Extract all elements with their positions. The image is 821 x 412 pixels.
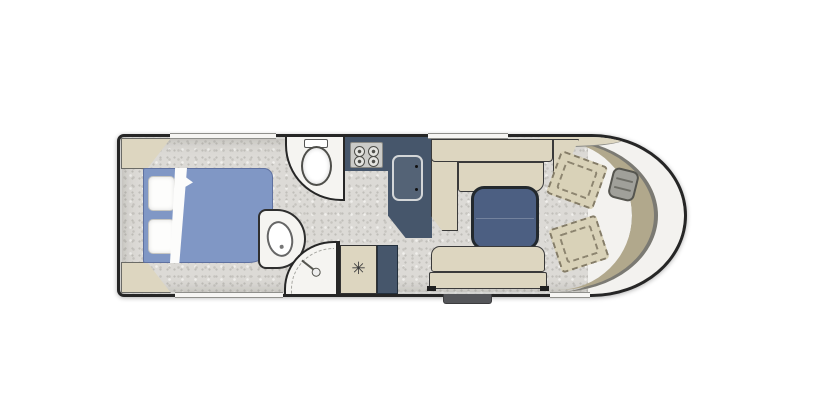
roof-fan-cabinet: ✳	[340, 245, 377, 294]
table-leaf-join	[476, 218, 534, 219]
motorhome-body: ✳	[117, 134, 687, 297]
pedestal-table	[471, 186, 539, 250]
burner-icon	[368, 156, 379, 167]
burner-icon	[354, 156, 365, 167]
chair-seat-stitching	[558, 224, 600, 263]
bench-cushion	[429, 272, 547, 289]
seat-bracket	[540, 286, 549, 291]
window-top-lounge	[428, 133, 508, 139]
sofa-backrest	[431, 139, 553, 162]
bench-seat	[427, 246, 549, 292]
kitchen-sink-icon	[392, 155, 423, 201]
window-top-bedroom	[170, 133, 276, 139]
hob-icon	[350, 142, 383, 168]
storage-unit	[377, 245, 398, 294]
fan-icon: ✳	[351, 261, 365, 278]
chair-seat-stitching	[556, 160, 598, 200]
seat-bracket	[427, 286, 436, 291]
floorplan-canvas: ✳	[0, 0, 821, 412]
pillow	[148, 176, 175, 211]
window-bottom-cab	[550, 292, 590, 298]
window-bottom-bedroom	[175, 292, 283, 298]
entry-step	[443, 294, 492, 304]
wardrobe-rear-bottom	[121, 262, 171, 293]
wardrobe-rear-top	[121, 138, 171, 169]
bench-backrest	[431, 246, 545, 272]
toilet-icon	[301, 146, 332, 186]
